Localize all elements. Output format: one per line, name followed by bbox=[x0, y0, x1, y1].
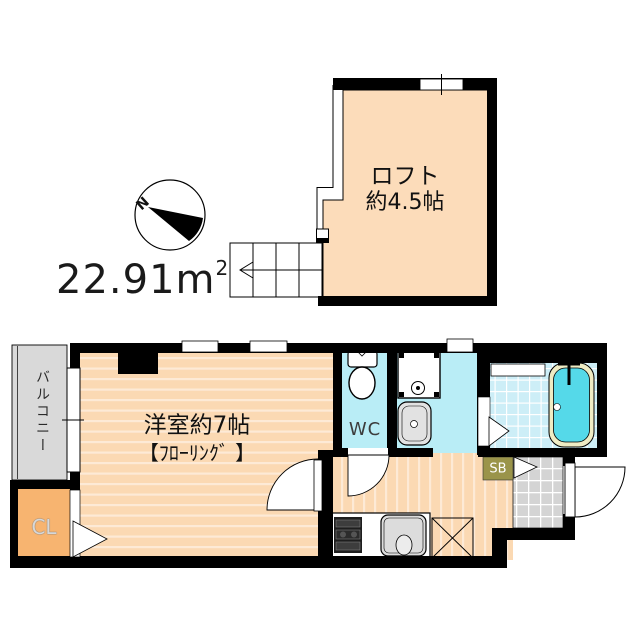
main-room-floor-type-label: 【ﾌﾛｰﾘﾝｸﾞ 】 bbox=[139, 443, 255, 463]
closet-label: CL bbox=[31, 517, 56, 537]
compass bbox=[135, 180, 205, 250]
floorplan-drawing bbox=[0, 0, 640, 640]
stove-icon bbox=[334, 517, 362, 553]
kitchen-counter bbox=[328, 513, 430, 557]
loft-room-label: ロフト bbox=[371, 166, 440, 189]
stairs bbox=[230, 243, 322, 297]
loft-size-label: 約4.5帖 bbox=[366, 192, 445, 214]
wc-label: WC bbox=[349, 421, 381, 439]
shoe-box-label: SB bbox=[489, 463, 506, 476]
balcony-label: バルコニー bbox=[35, 370, 49, 455]
bath-counter bbox=[491, 364, 545, 376]
sink-icon bbox=[398, 402, 431, 445]
bath-door bbox=[478, 397, 490, 446]
loft-wall-bottom bbox=[318, 296, 497, 306]
floor-area-label: 22.91m2 bbox=[56, 258, 228, 300]
floorplan-canvas: 22.91m2 N ロフト 約4.5帖 洋室約7帖 【ﾌﾛｰﾘﾝｸﾞ 】 WC … bbox=[0, 0, 640, 640]
loft-wall-right bbox=[487, 78, 497, 306]
room-door-leaf bbox=[314, 460, 322, 511]
toilet-icon bbox=[348, 351, 377, 399]
window bbox=[250, 341, 287, 352]
front-door-swing bbox=[575, 467, 625, 517]
loft-wall-top bbox=[333, 78, 497, 90]
main-room-label: 洋室約7帖 bbox=[144, 415, 251, 438]
window bbox=[447, 339, 473, 352]
window bbox=[182, 341, 218, 352]
kitchen-sink-icon bbox=[381, 515, 426, 556]
front-door-leaf bbox=[565, 463, 575, 517]
washing-machine-icon bbox=[398, 352, 440, 398]
